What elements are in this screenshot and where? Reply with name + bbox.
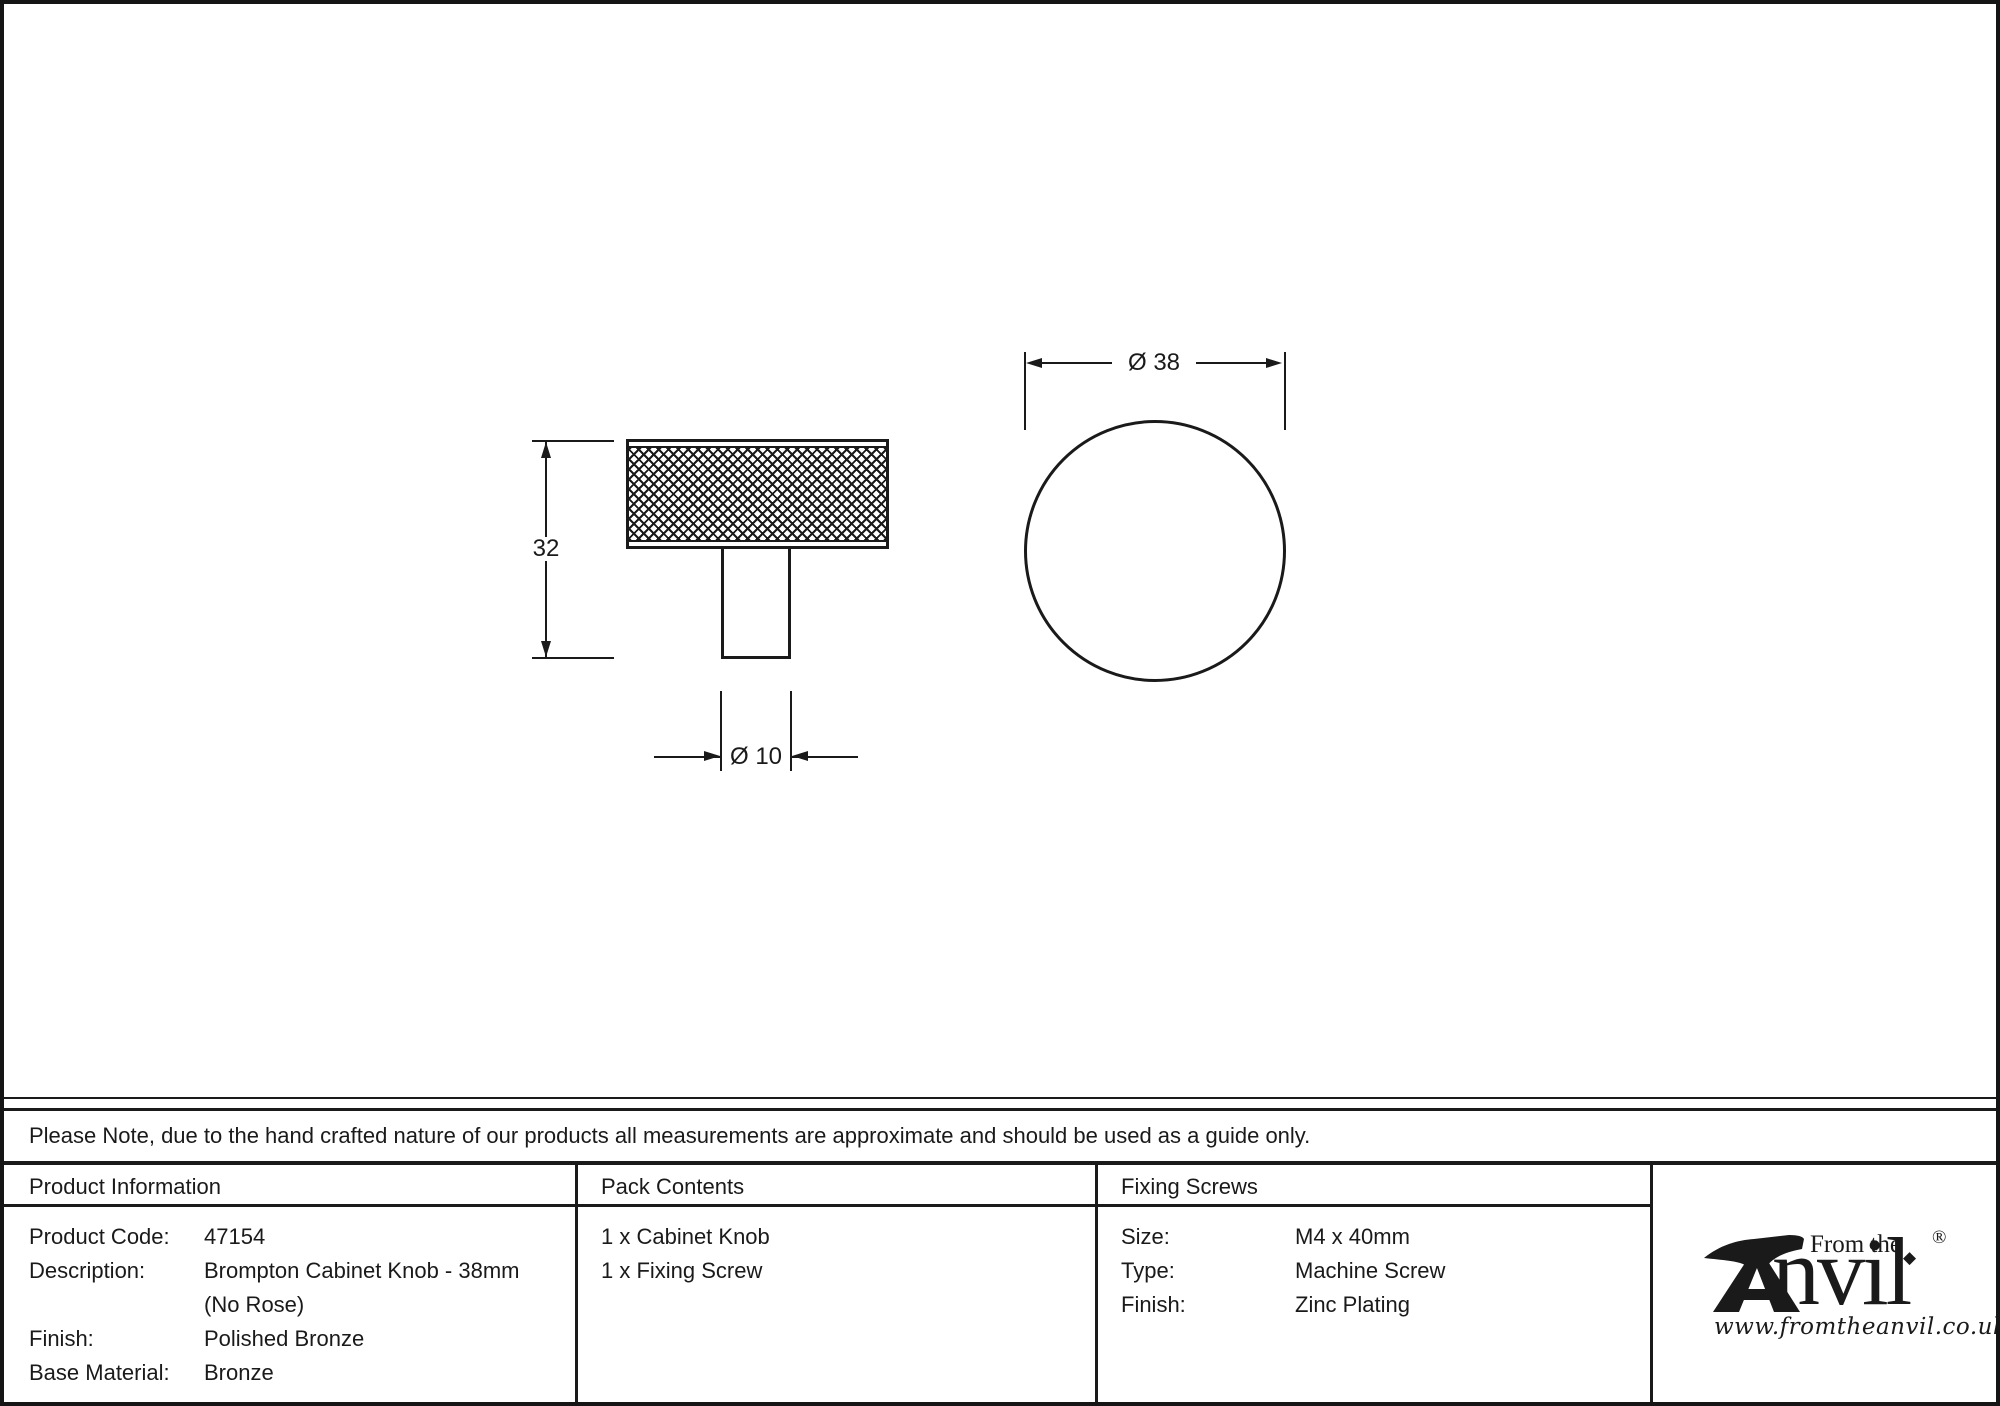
fixing-screws-header: Fixing Screws bbox=[1121, 1170, 1258, 1204]
arrowhead-left-icon bbox=[792, 751, 808, 761]
row-label: Type: bbox=[1121, 1254, 1295, 1288]
table-divider bbox=[1095, 1162, 1098, 1402]
row-value: Brompton Cabinet Knob - 38mm bbox=[204, 1254, 520, 1288]
row-value: Machine Screw bbox=[1295, 1254, 1445, 1288]
table-divider bbox=[1650, 1162, 1653, 1402]
height-dimension-label: 32 bbox=[522, 537, 570, 561]
table-row: Finish: Polished Bronze bbox=[29, 1322, 520, 1356]
row-label: Finish: bbox=[29, 1322, 204, 1356]
dimension-line bbox=[1196, 362, 1266, 364]
note-strip: Please Note, due to the hand crafted nat… bbox=[4, 1108, 1996, 1165]
row-value: 47154 bbox=[204, 1220, 265, 1254]
registered-trademark-icon: ® bbox=[1932, 1228, 1946, 1247]
pack-contents-header: Pack Contents bbox=[601, 1170, 744, 1204]
table-row: (No Rose) bbox=[29, 1288, 520, 1322]
table-row: Type: Machine Screw bbox=[1121, 1254, 1445, 1288]
pack-contents-cell: 1 x Cabinet Knob 1 x Fixing Screw bbox=[601, 1220, 770, 1288]
list-item: 1 x Cabinet Knob bbox=[601, 1220, 770, 1254]
row-value: Polished Bronze bbox=[204, 1322, 364, 1356]
row-label: Product Code: bbox=[29, 1220, 204, 1254]
arrowhead-right-icon bbox=[1266, 358, 1282, 368]
table-row: Description: Brompton Cabinet Knob - 38m… bbox=[29, 1254, 520, 1288]
knob-stem bbox=[721, 549, 791, 659]
logo-website-url: www.fromtheanvil.co.uk bbox=[1714, 1314, 2000, 1340]
table-divider bbox=[575, 1162, 578, 1402]
table-row: Base Material: Bronze bbox=[29, 1356, 520, 1390]
row-value: (No Rose) bbox=[204, 1288, 304, 1322]
table-row: Finish: Zinc Plating bbox=[1121, 1288, 1445, 1322]
knob-head bbox=[626, 439, 889, 549]
table-row: Product Code: 47154 bbox=[29, 1220, 520, 1254]
arrowhead-up-icon bbox=[541, 442, 551, 458]
knob-top-view-circle bbox=[1024, 420, 1286, 682]
note-text: Please Note, due to the hand crafted nat… bbox=[29, 1123, 1310, 1149]
product-info-header: Product Information bbox=[29, 1170, 221, 1204]
list-item: 1 x Fixing Screw bbox=[601, 1254, 770, 1288]
row-label: Description: bbox=[29, 1254, 204, 1288]
arrowhead-left-icon bbox=[1026, 358, 1042, 368]
knurl-pattern bbox=[629, 446, 886, 542]
dimension-line bbox=[1042, 362, 1112, 364]
arrowhead-right-icon bbox=[704, 751, 720, 761]
product-info-cell: Product Code: 47154 Description: Brompto… bbox=[29, 1220, 520, 1390]
row-label: Finish: bbox=[1121, 1288, 1295, 1322]
row-label: Base Material: bbox=[29, 1356, 204, 1390]
spec-sheet-page: 32 Ø 10 Ø 38 Please Note, due to the han bbox=[0, 0, 2000, 1406]
row-label: Size: bbox=[1121, 1220, 1295, 1254]
drawing-area-bottom-border bbox=[4, 1097, 1996, 1099]
table-row: Size: M4 x 40mm bbox=[1121, 1220, 1445, 1254]
header-row-divider bbox=[4, 1204, 1653, 1207]
arrowhead-down-icon bbox=[541, 641, 551, 657]
extension-line bbox=[1284, 352, 1286, 430]
logo-brand-text: nvil bbox=[1772, 1226, 1909, 1318]
row-value: Bronze bbox=[204, 1356, 274, 1390]
row-value: M4 x 40mm bbox=[1295, 1220, 1410, 1254]
diameter-dimension-label: Ø 38 bbox=[1104, 351, 1204, 375]
stem-diameter-label: Ø 10 bbox=[720, 745, 792, 769]
row-value: Zinc Plating bbox=[1295, 1288, 1410, 1322]
row-label bbox=[29, 1288, 204, 1322]
fixing-screws-cell: Size: M4 x 40mm Type: Machine Screw Fini… bbox=[1121, 1220, 1445, 1322]
